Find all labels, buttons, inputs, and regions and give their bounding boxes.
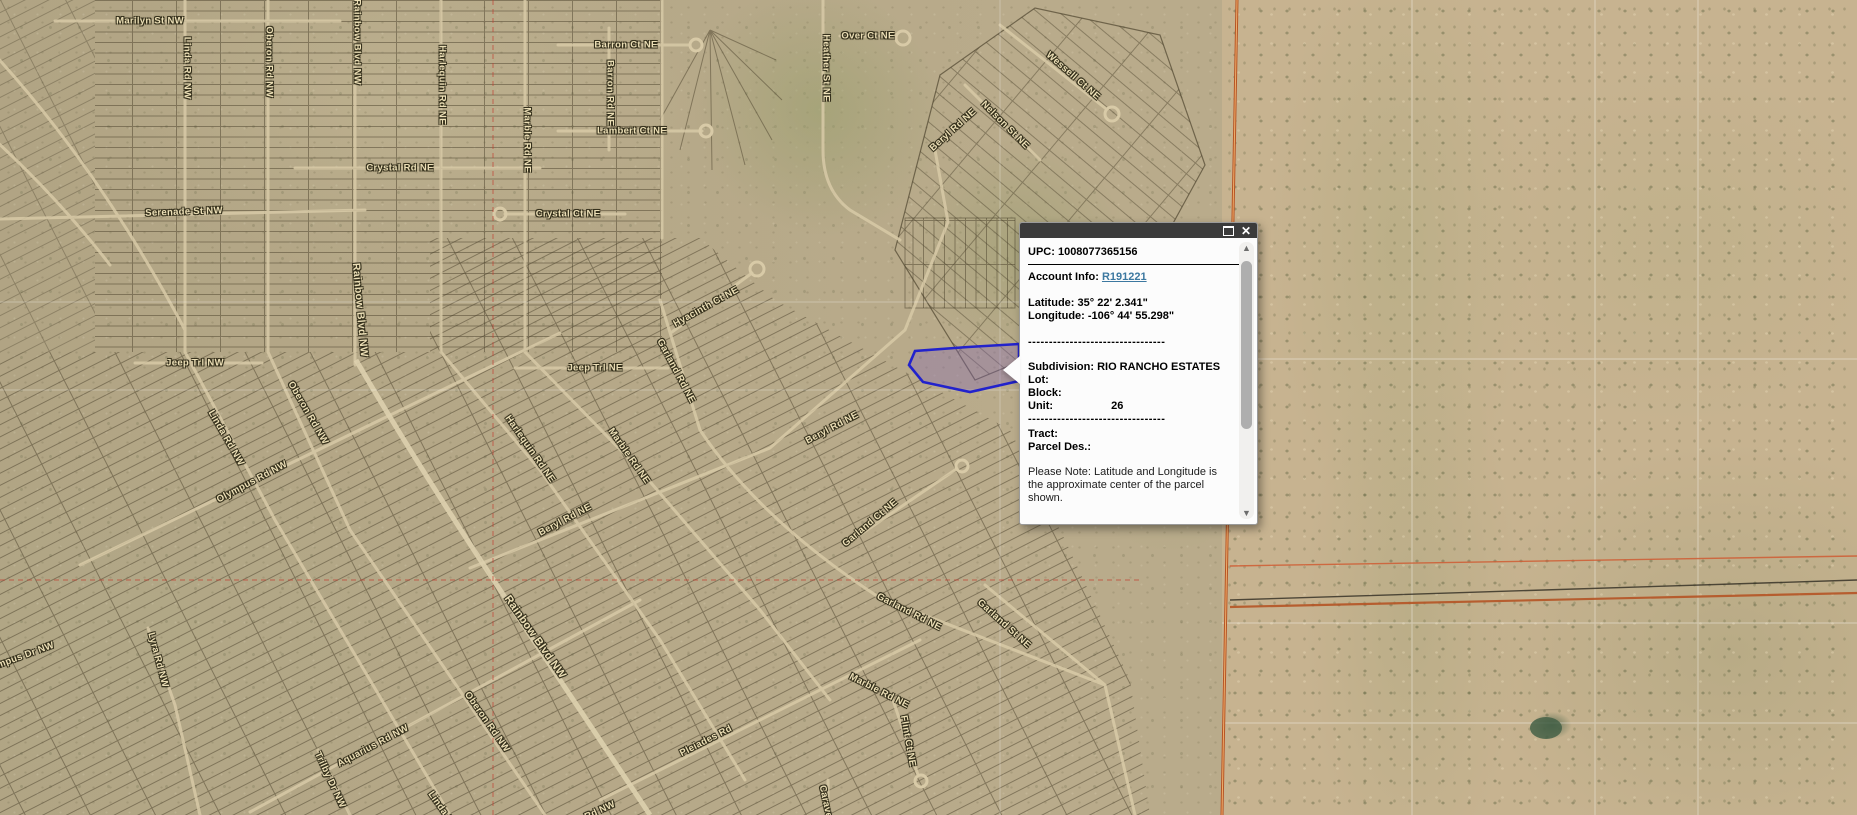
latitude-label: Latitude: (1028, 297, 1074, 309)
fan-lot-lines (660, 30, 782, 170)
tract-label: Tract: (1028, 428, 1058, 440)
upc-row: UPC: 1008077365156 (1028, 238, 1231, 259)
scrollbar-thumb[interactable] (1241, 261, 1252, 429)
popup-note: Please Note: Latitude and Longitude is t… (1028, 466, 1231, 505)
parcel-des-row: Parcel Des.: (1028, 441, 1231, 454)
longitude-label: Longitude: (1028, 310, 1085, 322)
latitude-value: 35° 22' 2.341" (1078, 297, 1148, 309)
longitude-value: -106° 44' 55.298" (1088, 310, 1174, 322)
upc-label: UPC: (1028, 246, 1055, 258)
block-label: Block: (1028, 387, 1062, 399)
popup-titlebar[interactable]: ✕ (1020, 223, 1257, 238)
account-row: Account Info: R191221 (1028, 271, 1231, 284)
aerial-map[interactable]: Marilyn St NWLinda Rd NWOberon Rd NWRain… (0, 0, 1857, 815)
stock-pond (1530, 717, 1562, 739)
block-row: Block: (1028, 387, 1231, 400)
unit-value: 26 (1111, 400, 1123, 412)
close-icon[interactable]: ✕ (1241, 225, 1251, 237)
longitude-row: Longitude: -106° 44' 55.298" (1028, 310, 1231, 323)
dashed-separator: --------------------------------- (1028, 336, 1231, 349)
account-label: Account Info: (1028, 271, 1099, 283)
popup-scrollbar[interactable]: ▲ ▼ (1239, 242, 1254, 519)
subdivision-value: RIO RANCHO ESTATES (1097, 361, 1220, 373)
upc-value: 1008077365156 (1058, 246, 1138, 258)
dashed-separator: --------------------------------- (1028, 413, 1231, 426)
scroll-up-icon[interactable]: ▲ (1239, 243, 1254, 253)
boundary-lines-bottom-right (1230, 556, 1857, 607)
maximize-icon[interactable] (1223, 226, 1234, 236)
popup-callout-arrow (1003, 356, 1020, 384)
unit-label: Unit: (1028, 400, 1053, 412)
tract-row: Tract: (1028, 428, 1231, 441)
lot-row: Lot: (1028, 374, 1231, 387)
subdivision-label: Subdivision: (1028, 361, 1094, 373)
parcel-des-label: Parcel Des.: (1028, 441, 1091, 453)
popup-content: UPC: 1008077365156 Account Info: R191221… (1020, 238, 1257, 524)
parcel-linework-overlay (0, 0, 1857, 815)
latitude-row: Latitude: 35° 22' 2.341" (1028, 297, 1231, 310)
parcel-info-popup: ✕ UPC: 1008077365156 Account Info: R1912… (1019, 222, 1258, 525)
account-link[interactable]: R191221 (1102, 271, 1147, 283)
map-viewer-screen: Marilyn St NWLinda Rd NWOberon Rd NWRain… (0, 0, 1857, 815)
lot-label: Lot: (1028, 374, 1049, 386)
scroll-down-icon[interactable]: ▼ (1239, 508, 1254, 518)
subdivision-row: Subdivision: RIO RANCHO ESTATES (1028, 361, 1231, 374)
divider-rule (1028, 264, 1245, 265)
unit-row: Unit: 26 (1028, 400, 1231, 413)
